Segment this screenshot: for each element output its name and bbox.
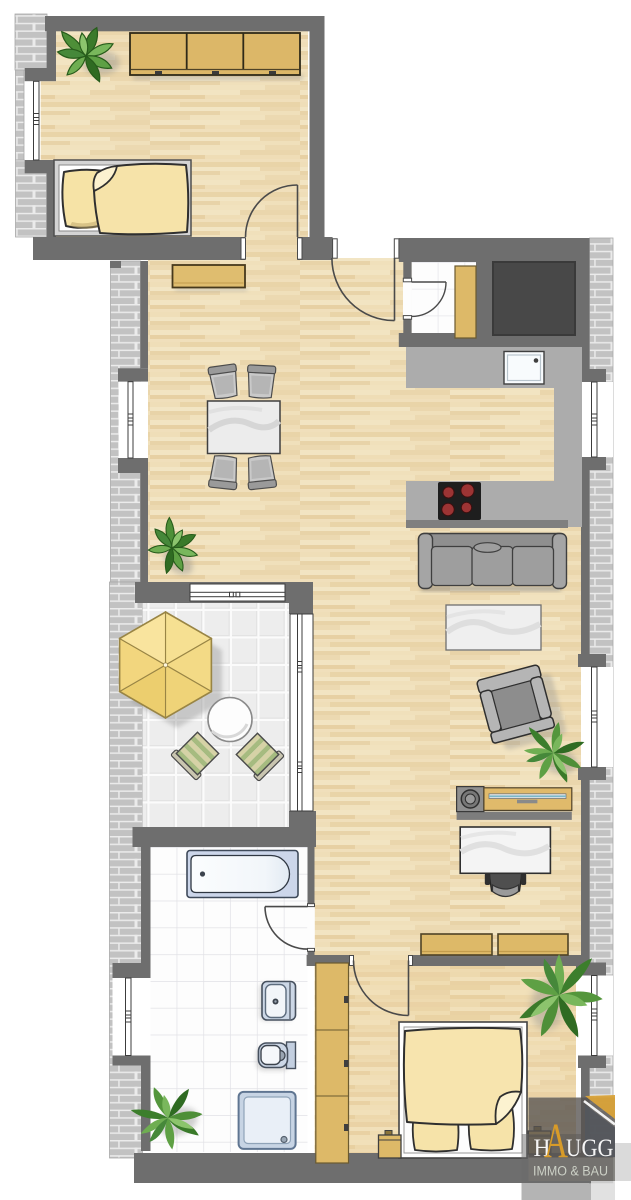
svg-text:U: U — [566, 1133, 581, 1162]
svg-text:IMMO & BAU: IMMO & BAU — [533, 1164, 608, 1179]
svg-text:A: A — [544, 1113, 568, 1169]
svg-text:G: G — [582, 1133, 598, 1162]
svg-text:G: G — [598, 1133, 614, 1162]
